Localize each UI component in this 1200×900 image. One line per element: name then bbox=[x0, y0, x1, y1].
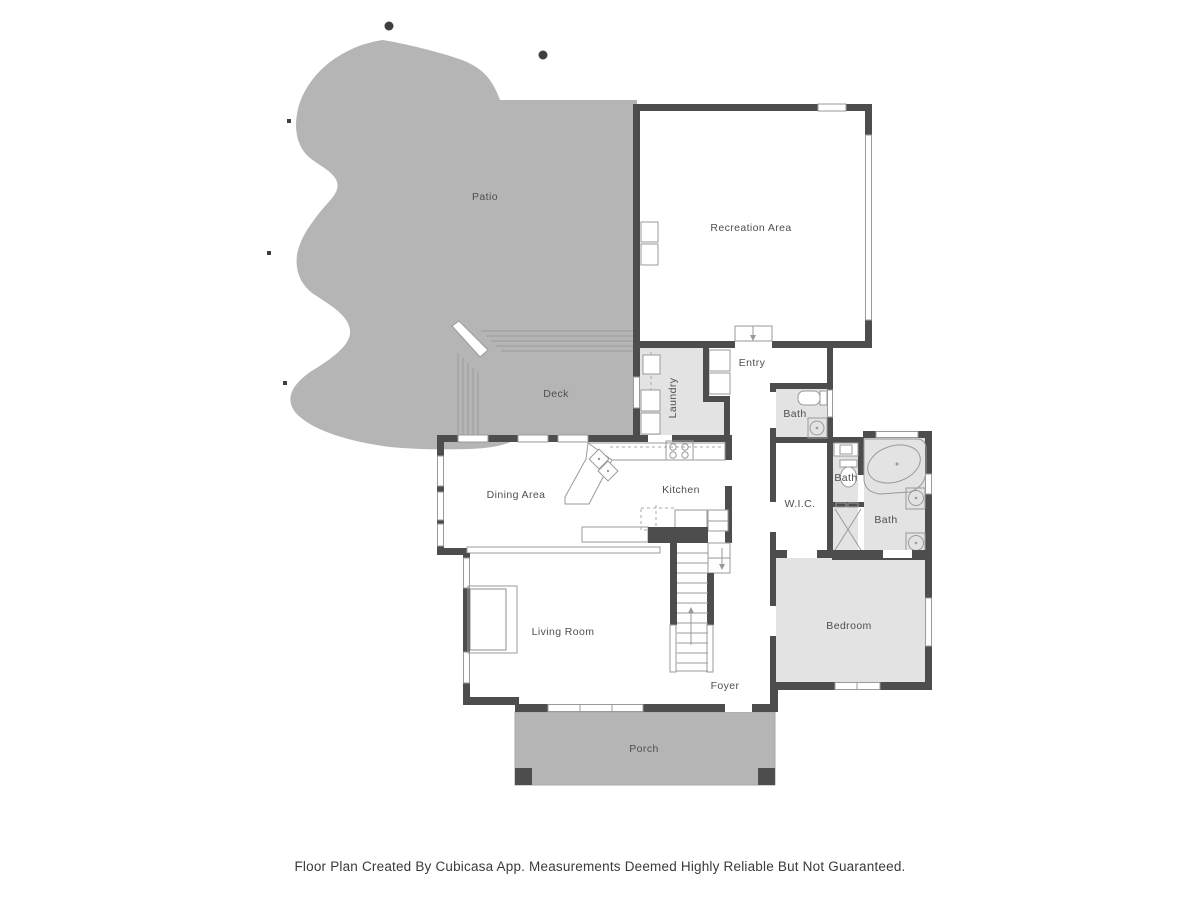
toilet-icon bbox=[798, 391, 827, 405]
tree-dot bbox=[385, 22, 394, 31]
door-opening bbox=[858, 475, 864, 502]
window bbox=[518, 435, 548, 442]
bath-main-label: Bath bbox=[874, 514, 897, 526]
window bbox=[558, 435, 588, 442]
window bbox=[458, 435, 488, 442]
half-wall bbox=[467, 547, 660, 553]
kitchen-island bbox=[582, 527, 648, 542]
window bbox=[464, 558, 470, 588]
dining-label: Dining Area bbox=[487, 489, 546, 501]
window bbox=[548, 705, 643, 712]
door-opening bbox=[735, 341, 772, 348]
door-opening bbox=[883, 550, 912, 558]
laundry-label: Laundry bbox=[667, 377, 679, 418]
washer bbox=[641, 390, 660, 411]
living-label: Living Room bbox=[532, 626, 595, 638]
window bbox=[828, 390, 833, 417]
recreation-label: Recreation Area bbox=[710, 222, 791, 234]
stair-arrow-down bbox=[719, 548, 725, 570]
door-opening bbox=[770, 392, 776, 428]
cabinet bbox=[643, 355, 660, 374]
door-opening bbox=[770, 606, 776, 636]
window bbox=[438, 456, 444, 486]
kitchen-counter bbox=[565, 441, 725, 504]
window bbox=[926, 474, 932, 494]
stair-rail bbox=[670, 625, 676, 672]
footer-disclaimer: Floor Plan Created By Cubicasa App. Meas… bbox=[294, 859, 905, 874]
window bbox=[818, 104, 846, 111]
deck-area: Deck bbox=[452, 321, 637, 437]
staircase bbox=[641, 508, 730, 672]
bush-dot bbox=[267, 251, 271, 255]
window bbox=[438, 492, 444, 520]
bath-top-label: Bath bbox=[783, 408, 806, 420]
stair-rail bbox=[707, 625, 713, 672]
stair-treads bbox=[676, 553, 730, 671]
window bbox=[876, 432, 918, 438]
kitchen-label: Kitchen bbox=[662, 484, 700, 496]
front-door-opening bbox=[725, 704, 752, 712]
wic-label: W.I.C. bbox=[785, 498, 816, 510]
closet-shelf bbox=[709, 350, 730, 371]
corridor-wall bbox=[770, 383, 776, 712]
cabinet bbox=[641, 244, 658, 265]
fireplace bbox=[468, 586, 517, 653]
floor-plan-svg: Patio Deck bbox=[0, 0, 1200, 900]
porch-post bbox=[515, 768, 532, 785]
patio-label: Patio bbox=[472, 191, 498, 203]
porch-post bbox=[758, 768, 775, 785]
bath-mid-label: Bath bbox=[834, 472, 857, 484]
bedroom-label: Bedroom bbox=[826, 620, 871, 632]
deck-label: Deck bbox=[543, 388, 569, 400]
bush-dot bbox=[283, 381, 287, 385]
bath-top-room: Bath bbox=[770, 348, 833, 557]
foyer-label: Foyer bbox=[711, 680, 740, 692]
cabinet bbox=[641, 222, 658, 242]
living-room: Living Room bbox=[463, 553, 594, 705]
dryer bbox=[641, 413, 660, 434]
window bbox=[634, 377, 640, 408]
window bbox=[438, 524, 444, 546]
deck-shape bbox=[455, 326, 637, 437]
entry-label: Entry bbox=[739, 357, 766, 369]
floor-plan-canvas: Patio Deck bbox=[0, 0, 1200, 900]
door-opening bbox=[787, 550, 817, 558]
door-opening bbox=[770, 502, 776, 532]
window bbox=[464, 652, 470, 683]
shower-floor bbox=[833, 507, 858, 552]
closet-shelf bbox=[709, 373, 730, 394]
bath-main-floor bbox=[864, 438, 925, 552]
tree-dot bbox=[539, 51, 548, 60]
stair-arrow-up bbox=[688, 607, 694, 645]
bush-dot bbox=[287, 119, 291, 123]
window bbox=[926, 598, 932, 646]
porch-label: Porch bbox=[629, 743, 658, 755]
window bbox=[866, 135, 872, 320]
wic-room: W.I.C. bbox=[785, 498, 816, 510]
